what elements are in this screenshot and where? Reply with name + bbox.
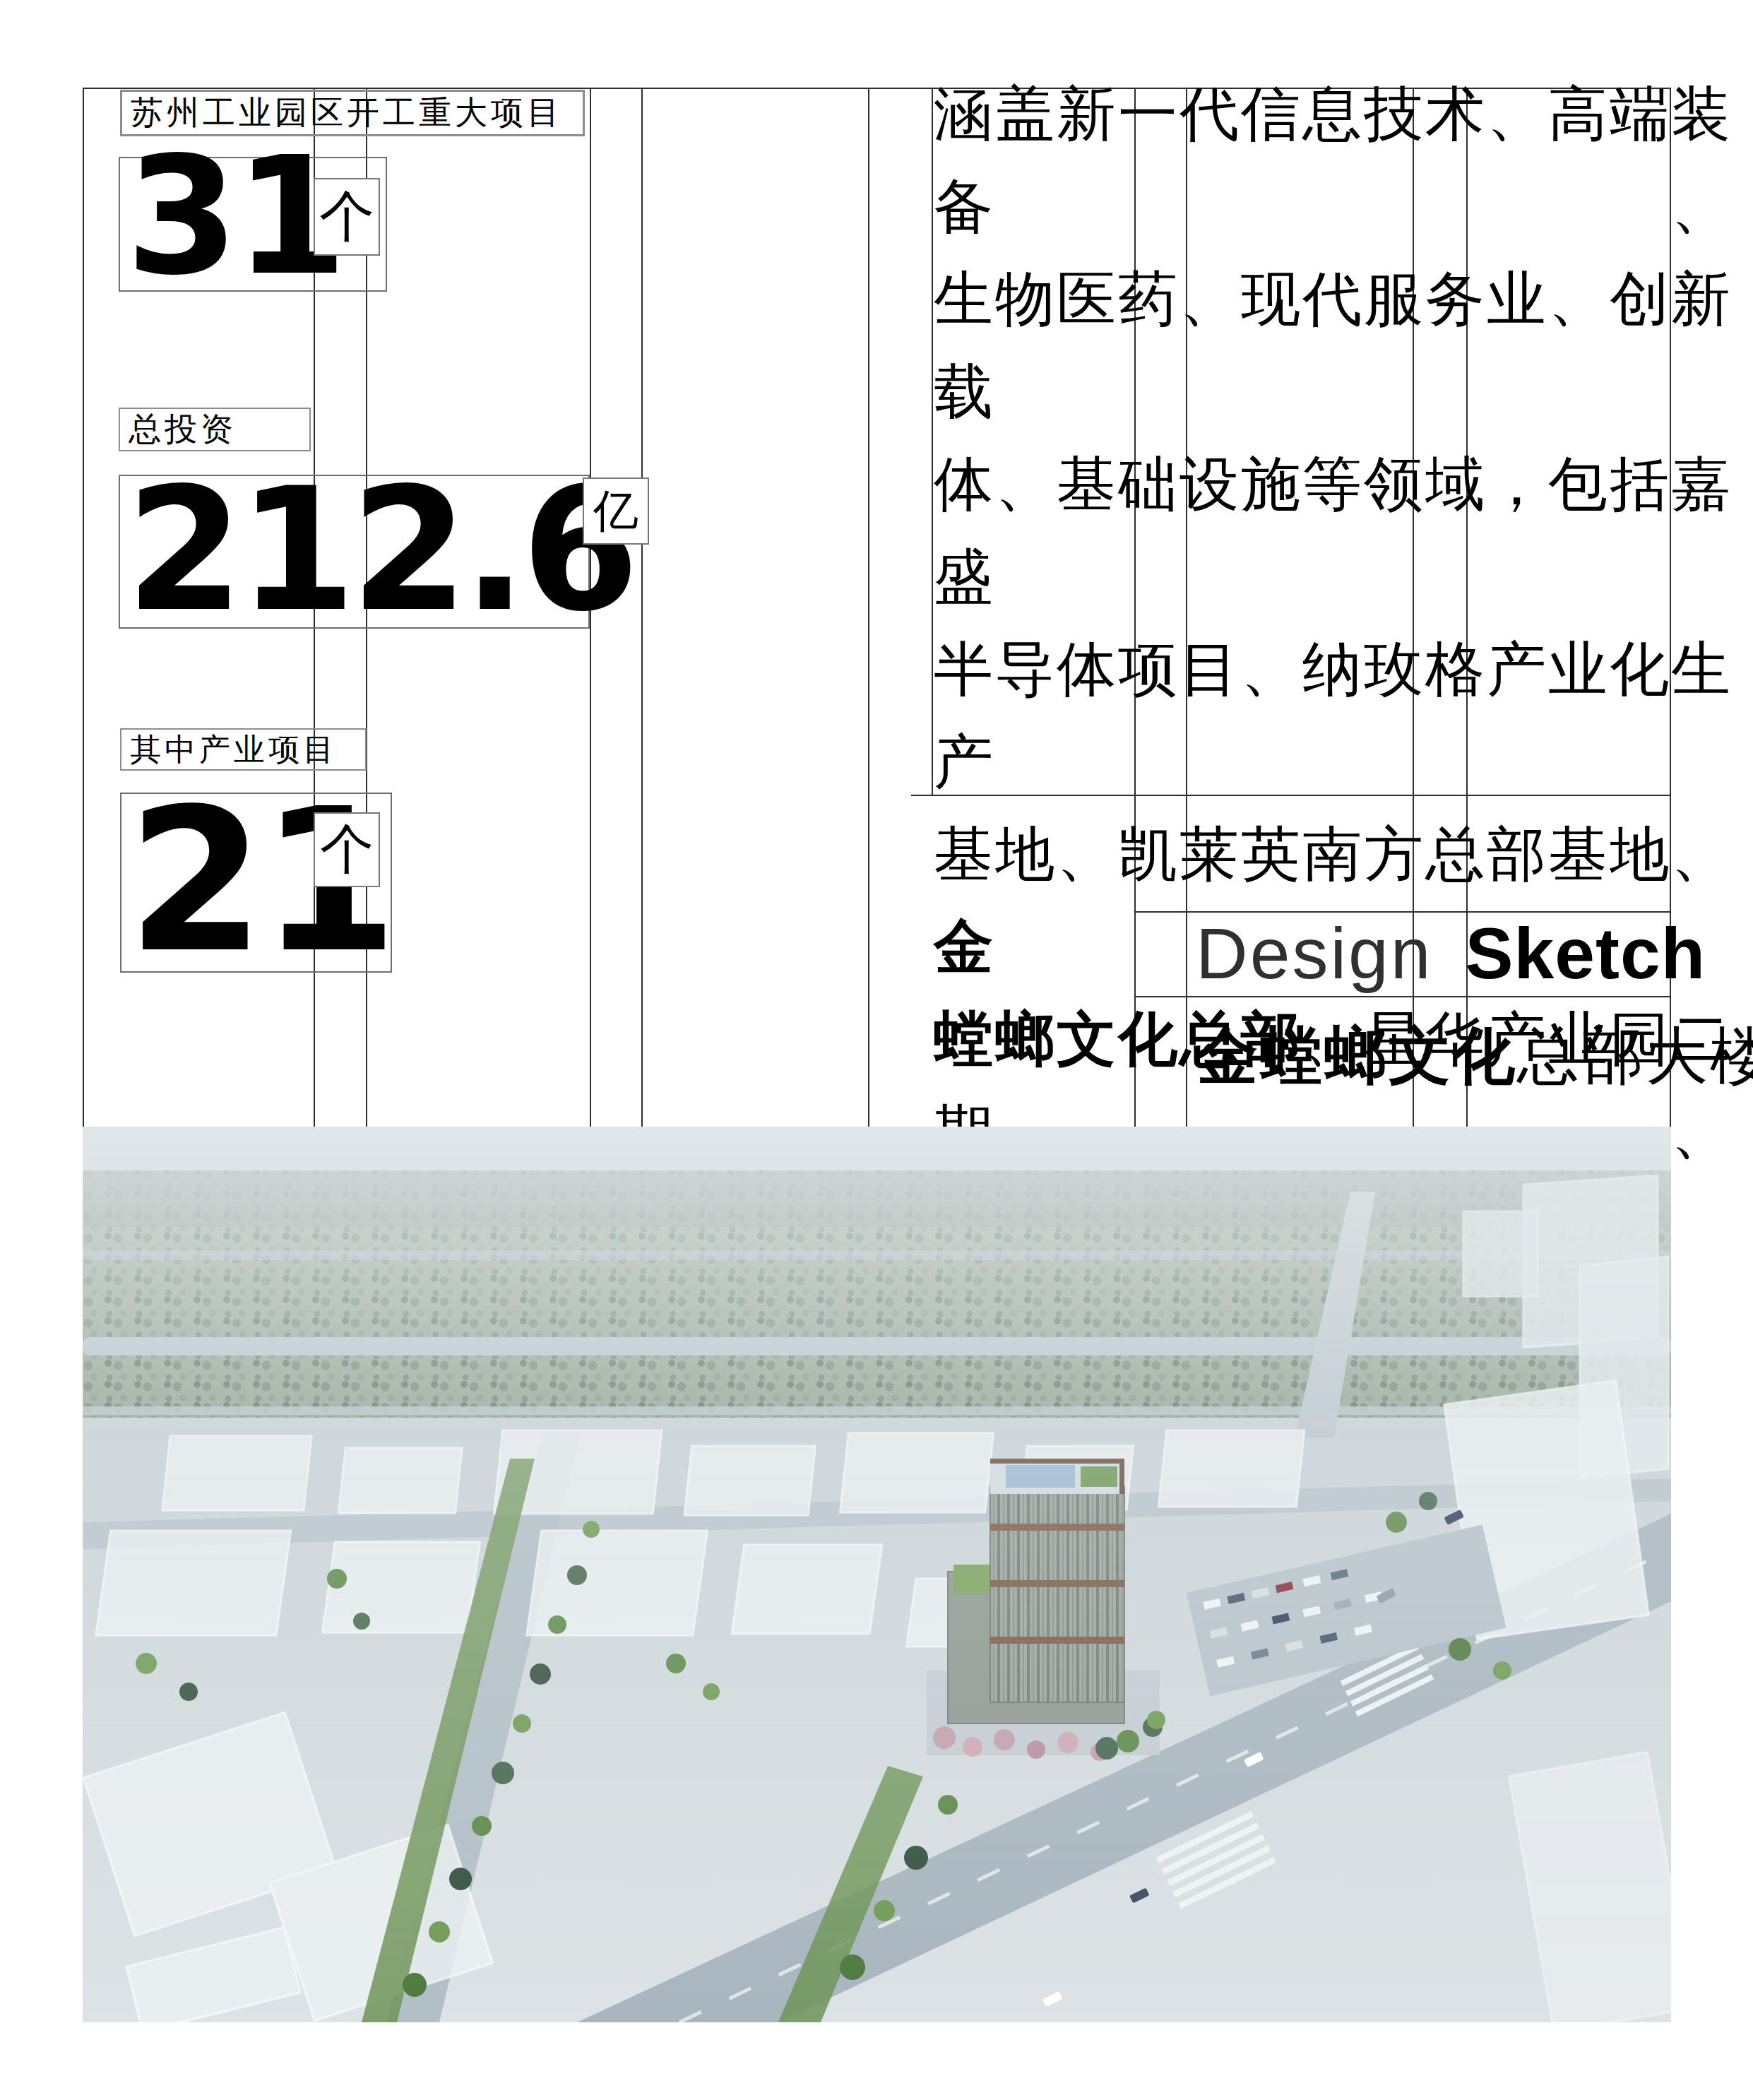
aerial-rendering-svg (83, 1127, 1671, 2022)
stat2-value: 212.6 (126, 473, 634, 629)
paragraph-segment: 生物医药、现代服务业、创新载 (934, 266, 1730, 425)
magazine-page: 苏州工业园区开工重大项目 31 个 总投资 212.6 亿 其中产业项目 21 … (0, 0, 1753, 2100)
design-word: Design (1196, 913, 1433, 995)
stat2-label: 总投资 (129, 408, 237, 451)
stat3-label: 其中产业项目 (130, 729, 338, 771)
paragraph-segment: 基地、凯莱英南方总部基地、 (934, 821, 1730, 887)
photo-caption: 金螳螂文化总部大楼 (1196, 1014, 1753, 1098)
stat3-label-box: 其中产业项目 (120, 728, 367, 771)
stat2-unit-box: 亿 (583, 477, 649, 545)
paragraph-line: 生物医药、现代服务业、创新载 (934, 253, 1730, 438)
caption-bold: 金螳螂文化 (1196, 1021, 1517, 1091)
aerial-rendering-image (83, 1127, 1671, 2022)
stat1-unit: 个 (319, 180, 374, 254)
paragraph-line: 半导体项目、纳玫格产业化生产 (934, 623, 1730, 808)
stat3-unit-box: 个 (314, 812, 380, 887)
paragraph-line: 涵盖新一代信息技术、高端装备、 (934, 68, 1730, 253)
stat1-unit-box: 个 (314, 178, 380, 256)
grid-vline (641, 88, 643, 1127)
paragraph-line: 体、基础设施等领域，包括嘉盛 (934, 438, 1730, 623)
stat3-unit: 个 (320, 814, 374, 886)
paragraph-segment: 涵盖新一代信息技术、高端装备、 (934, 81, 1730, 239)
stat2-unit: 亿 (593, 480, 638, 542)
paragraph-bold-segment: 金 (934, 913, 993, 980)
grid-vline (932, 88, 933, 795)
stat2-label-box: 总投资 (119, 408, 311, 451)
caption-rest: 总部大楼 (1517, 1021, 1753, 1091)
sketch-word: Sketch (1466, 913, 1706, 995)
grid-vline (868, 88, 869, 1127)
paragraph-segment: 体、基础设施等领域，包括嘉盛 (934, 451, 1730, 610)
grid-vline (83, 88, 84, 1127)
stat2-value-box: 212.6 (119, 475, 590, 629)
stat1-value: 31 (126, 142, 343, 292)
design-sketch-row: Design Sketch (1196, 911, 1706, 996)
paragraph-segment: 半导体项目、纳玫格产业化生产 (934, 636, 1730, 795)
